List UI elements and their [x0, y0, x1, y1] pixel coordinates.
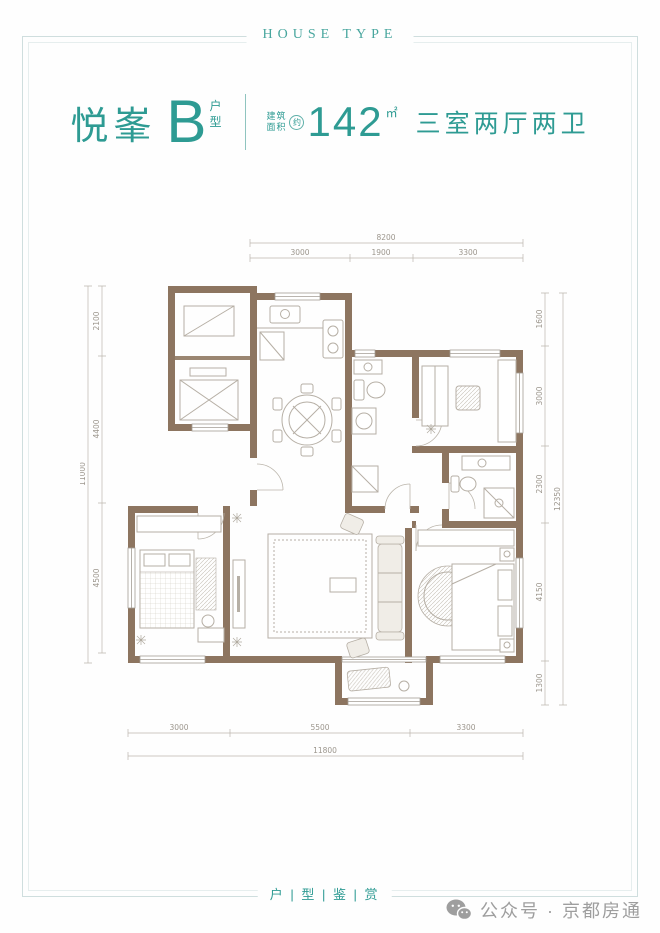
floorplan-drawing: 8200 3000 1900 3300 11000 2100 4400 4500…: [80, 228, 580, 778]
dim-bottom-3: 3300: [456, 723, 475, 732]
area-label-bottom: 面积: [266, 122, 286, 133]
dim-right-5: 1300: [535, 673, 544, 692]
unit-suffix-bottom: 型: [209, 115, 221, 131]
area-approx-badge: 约: [289, 115, 304, 130]
footer-tagline: 户 | 型 | 鉴 | 赏: [258, 884, 392, 903]
dim-bottom-overall: 11800: [313, 746, 337, 755]
dim-right-4: 4150: [535, 582, 544, 601]
title-block: 悦峯 B 户 型 建筑 面积 约 142 ㎡ 三室两厅两卫: [0, 94, 660, 150]
study-furniture: [422, 360, 516, 442]
footer-account: 公众号 · 京都房通: [446, 897, 642, 923]
area-label: 建筑 面积: [266, 111, 286, 134]
dim-top-overall: 8200: [376, 233, 395, 242]
wechat-icon: [446, 899, 472, 921]
dim-right-3: 2300: [535, 474, 544, 493]
area-label-top: 建筑: [266, 111, 286, 122]
ensuite-bathroom-fixtures: [451, 456, 514, 518]
living-room-furniture: [232, 513, 404, 659]
dim-right-2: 3000: [535, 386, 544, 405]
unit-suffix: 户 型: [209, 99, 221, 130]
master-bedroom-furniture: [418, 530, 514, 652]
unit-type: B 户 型: [166, 94, 221, 149]
kitchen-furniture: [257, 306, 343, 360]
title-divider: [245, 94, 246, 150]
dim-left-overall: 11000: [80, 462, 87, 486]
dim-left-1: 2100: [92, 311, 101, 330]
dim-right-1: 1600: [535, 309, 544, 328]
area-unit: ㎡: [386, 104, 398, 121]
unit-letter: B: [166, 94, 206, 149]
dim-left-3: 4500: [92, 568, 101, 587]
dim-bottom-1: 3000: [169, 723, 188, 732]
page: { "banner": { "title": "HOUSE TYPE" }, "…: [0, 0, 660, 933]
dining-table: [273, 384, 341, 456]
dim-right-overall: 12350: [553, 487, 562, 511]
dim-bottom-2: 5500: [310, 723, 329, 732]
stairs-and-elevator: [180, 306, 238, 420]
dim-top-1: 3000: [290, 248, 309, 257]
dim-left-2: 4400: [92, 419, 101, 438]
project-name: 悦峯: [70, 95, 156, 150]
dim-top-2: 1900: [371, 248, 390, 257]
unit-suffix-top: 户: [209, 99, 221, 115]
banner-title: HOUSE TYPE: [247, 27, 414, 43]
footer-account-text: 公众号 · 京都房通: [480, 897, 642, 923]
layout-description: 三室两厅两卫: [416, 104, 590, 140]
hall-bathroom-fixtures: [352, 360, 385, 492]
dim-top-3: 3300: [458, 248, 477, 257]
area-group: 建筑 面积 约 142 ㎡: [266, 101, 397, 143]
area-value: 142: [307, 101, 383, 143]
balcony-furniture: [347, 667, 409, 691]
